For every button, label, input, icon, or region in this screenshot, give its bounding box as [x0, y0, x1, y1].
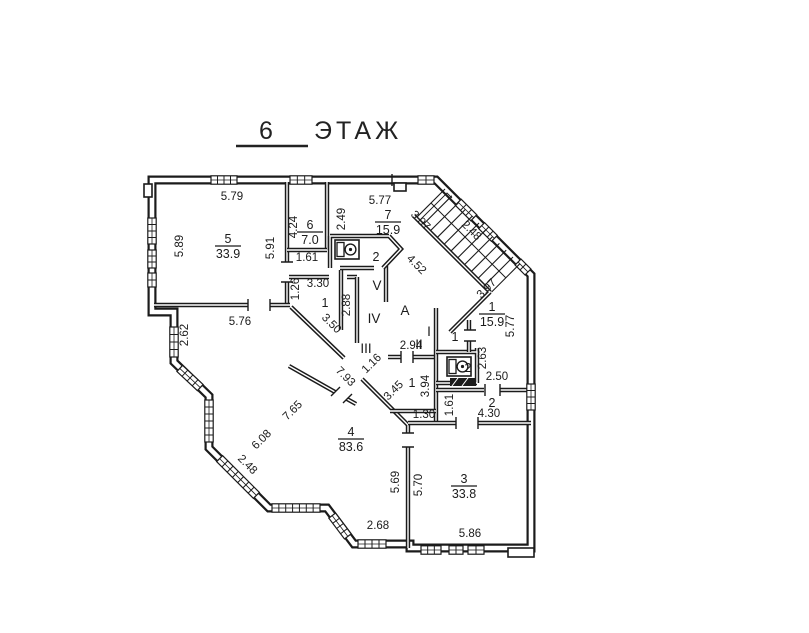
- window-icon: [290, 176, 312, 184]
- dimension-label: 5.70: [413, 474, 425, 496]
- room-number: 5: [225, 232, 232, 246]
- window-icon: [421, 546, 441, 554]
- window-icon: [205, 400, 213, 442]
- dimension-label: 2.50: [486, 371, 508, 383]
- dimension-label: 6.08: [250, 428, 274, 452]
- room-number: 6: [307, 218, 314, 232]
- small-room-number: 1: [409, 376, 416, 390]
- facade-notch: [508, 548, 534, 557]
- dimension-label: 1.61: [296, 252, 318, 264]
- dimension-label: 3.94: [420, 374, 432, 397]
- window-icon: [170, 327, 178, 357]
- room-number: 4: [348, 425, 355, 439]
- dimension-label: 3.30: [307, 278, 329, 290]
- window-icon: [177, 365, 203, 390]
- plan-title: 6 ЭТАЖ: [236, 117, 402, 146]
- staircase: [417, 189, 520, 292]
- dimension-label: 3.45: [382, 379, 406, 403]
- window-icon: [358, 540, 386, 548]
- zone-label: I: [427, 324, 431, 339]
- dimension-label: 5.77: [505, 315, 517, 337]
- dimension-label: 5.79: [221, 191, 243, 203]
- zone-label: III: [360, 341, 371, 356]
- zone-label: II: [415, 337, 423, 352]
- zone-label: А: [400, 303, 409, 318]
- small-room-number: 2: [489, 396, 496, 410]
- window-icon: [148, 250, 156, 268]
- zone-label: IV: [368, 311, 381, 326]
- room-area: 15.9: [376, 223, 400, 237]
- dimension-label: 1.30: [413, 409, 435, 421]
- room-number: 7: [385, 208, 392, 222]
- window-icon: [329, 513, 351, 539]
- toilet-icon: [335, 240, 359, 259]
- dimension-label: 2.63: [477, 347, 489, 369]
- zone-label: V: [372, 278, 381, 293]
- scanned-floor-plan-page: 6 ЭТАЖ 5.795.771.613.305.762.941.302.504…: [0, 0, 809, 633]
- dimension-label: 5.69: [390, 471, 402, 493]
- room-area: 33.9: [216, 247, 240, 261]
- dimension-label: 5.89: [174, 235, 186, 257]
- room-area: 15.9: [480, 315, 504, 329]
- window-icon: [272, 504, 320, 512]
- dimension-label: 5.86: [459, 528, 481, 540]
- small-room-number: 2: [465, 361, 472, 375]
- window-icon: [527, 384, 535, 410]
- small-room-number: 1: [452, 330, 459, 344]
- room-area: 83.6: [339, 440, 363, 454]
- facade-notch: [144, 184, 152, 197]
- facade-notch: [394, 183, 406, 191]
- floor-word: ЭТАЖ: [314, 117, 402, 145]
- dimension-label: 2.88: [341, 294, 353, 316]
- dimension-label: 5.76: [229, 316, 251, 328]
- window-icon: [148, 273, 156, 287]
- floor-plan-drawing: 6 ЭТАЖ 5.795.771.613.305.762.941.302.504…: [0, 0, 809, 633]
- room-number: 3: [461, 472, 468, 486]
- room-number: 1: [489, 300, 496, 314]
- window-icon: [211, 176, 237, 184]
- room-area: 33.8: [452, 487, 476, 501]
- dimension-label: 5.77: [369, 195, 391, 207]
- small-room-number: 1: [322, 296, 329, 310]
- dimension-label: 7.93: [333, 365, 357, 389]
- dimension-label: 2.62: [179, 324, 191, 346]
- dimension-label: 4.24: [288, 215, 300, 238]
- dimension-label: 2.49: [336, 208, 348, 230]
- room-area: 7.0: [301, 233, 318, 247]
- window-icon: [148, 218, 156, 244]
- small-room-number: 2: [373, 250, 380, 264]
- dimension-label: 1.61: [444, 394, 456, 416]
- dimension-label: 5.91: [265, 237, 277, 259]
- dimension-label: 7.65: [281, 399, 305, 423]
- dimension-label: 4.52: [404, 253, 428, 277]
- window-icon: [418, 176, 434, 184]
- window-icon: [468, 546, 484, 554]
- window-icon: [449, 546, 463, 554]
- dimension-label: 2.68: [367, 520, 389, 532]
- dimension-label: 1.26: [290, 278, 302, 300]
- floor-number: 6: [259, 117, 277, 145]
